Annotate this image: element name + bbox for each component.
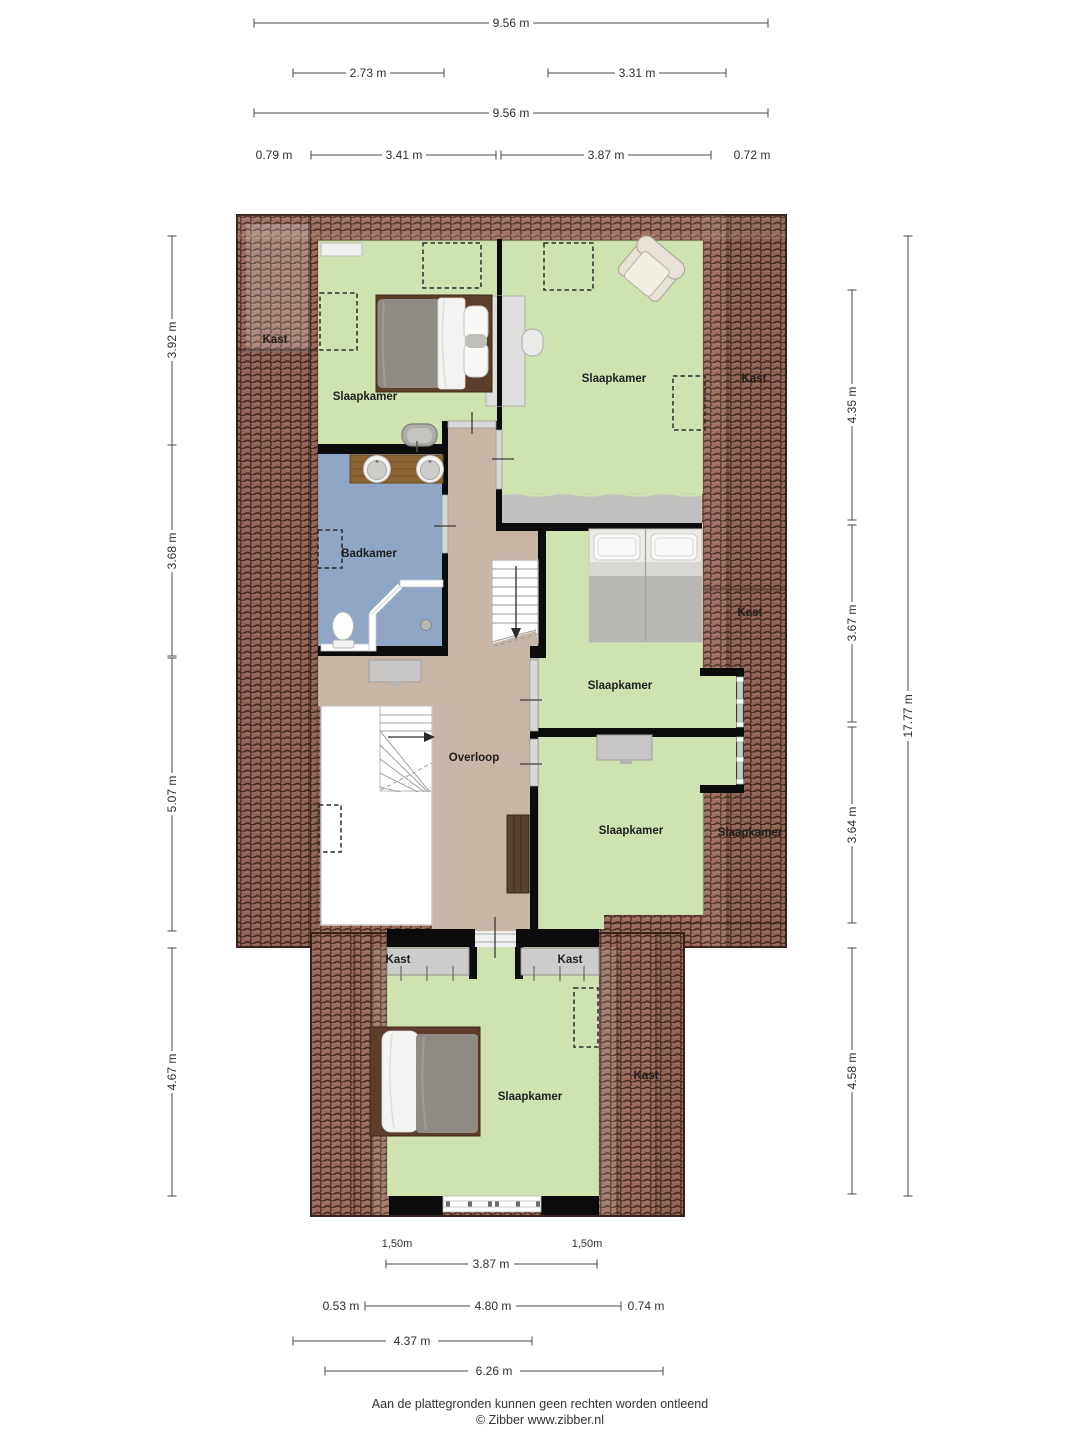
svg-text:Aan de plattegronden kunnen ge: Aan de plattegronden kunnen geen rechten… xyxy=(372,1397,708,1411)
svg-text:Slaapkamer: Slaapkamer xyxy=(588,680,653,692)
svg-text:4.37 m: 4.37 m xyxy=(394,1334,431,1348)
svg-text:3.87 m: 3.87 m xyxy=(473,1257,510,1271)
svg-text:Kast: Kast xyxy=(558,954,583,966)
svg-text:2.73 m: 2.73 m xyxy=(350,66,387,80)
svg-text:3.64 m: 3.64 m xyxy=(845,807,859,844)
svg-text:Kast: Kast xyxy=(742,373,767,385)
svg-text:Kast: Kast xyxy=(263,334,288,346)
svg-text:3.67 m: 3.67 m xyxy=(845,605,859,642)
svg-text:0.53 m: 0.53 m xyxy=(323,1299,360,1313)
svg-text:Slaapkamer: Slaapkamer xyxy=(582,373,647,385)
svg-text:Slaapkamer: Slaapkamer xyxy=(599,825,664,837)
svg-text:3.92 m: 3.92 m xyxy=(165,322,179,359)
svg-text:0.74 m: 0.74 m xyxy=(628,1299,665,1313)
svg-text:Overloop: Overloop xyxy=(449,752,499,764)
svg-text:0.79 m: 0.79 m xyxy=(256,148,293,162)
svg-text:0.72 m: 0.72 m xyxy=(734,148,771,162)
svg-text:17.77 m: 17.77 m xyxy=(901,694,915,737)
svg-text:Slaapkamer: Slaapkamer xyxy=(718,827,783,839)
svg-text:9.56 m: 9.56 m xyxy=(493,16,530,30)
svg-text:1,50m: 1,50m xyxy=(382,1238,413,1250)
svg-text:Kast: Kast xyxy=(738,607,763,619)
svg-text:4.58 m: 4.58 m xyxy=(845,1053,859,1090)
svg-text:Slaapkamer: Slaapkamer xyxy=(333,391,398,403)
svg-text:3.31 m: 3.31 m xyxy=(619,66,656,80)
svg-text:Slaapkamer: Slaapkamer xyxy=(498,1091,563,1103)
svg-text:6.26 m: 6.26 m xyxy=(476,1364,513,1378)
svg-text:4.80 m: 4.80 m xyxy=(475,1299,512,1313)
svg-text:3.68 m: 3.68 m xyxy=(165,533,179,570)
svg-text:4.35 m: 4.35 m xyxy=(845,387,859,424)
svg-text:4.67 m: 4.67 m xyxy=(165,1054,179,1091)
svg-text:Kast: Kast xyxy=(634,1070,659,1082)
svg-text:3.41 m: 3.41 m xyxy=(386,148,423,162)
svg-text:9.56 m: 9.56 m xyxy=(493,106,530,120)
svg-text:5.07 m: 5.07 m xyxy=(165,776,179,813)
svg-text:Kast: Kast xyxy=(386,954,411,966)
svg-text:3.87 m: 3.87 m xyxy=(588,148,625,162)
svg-text:1,50m: 1,50m xyxy=(572,1238,603,1250)
svg-text:Badkamer: Badkamer xyxy=(341,548,397,560)
svg-text:© Zibber www.zibber.nl: © Zibber www.zibber.nl xyxy=(476,1413,604,1427)
